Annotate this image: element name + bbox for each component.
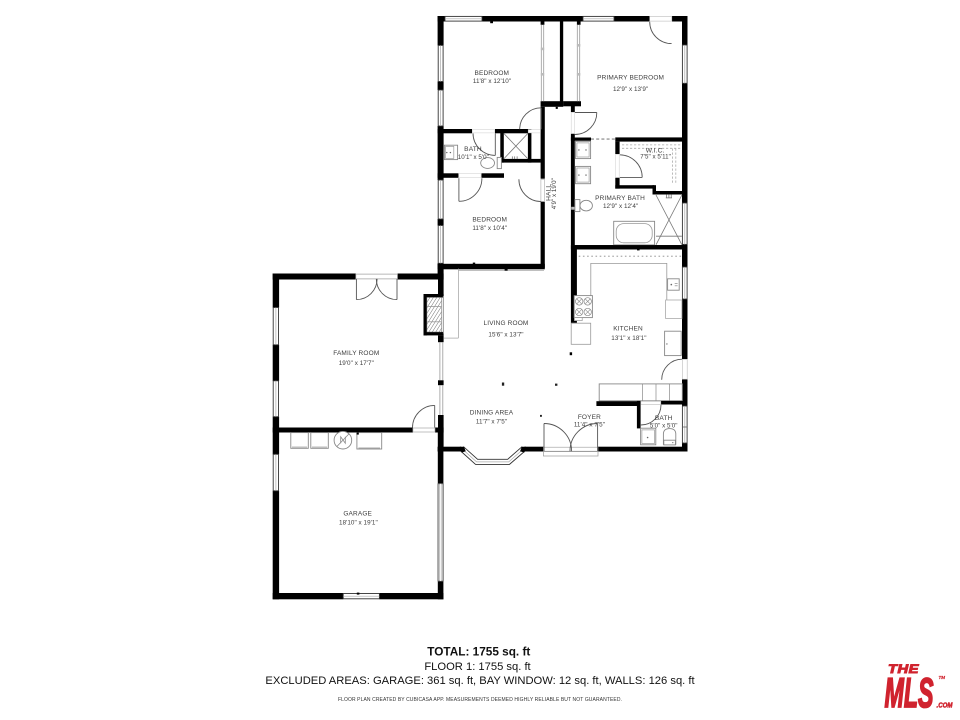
svg-text:5'0" x 5'0": 5'0" x 5'0" [650, 422, 678, 429]
svg-text:11'8" x 12'10": 11'8" x 12'10" [473, 78, 511, 85]
svg-text:10'1" x 5'0": 10'1" x 5'0" [458, 154, 489, 161]
svg-text:TOTAL: 1755 sq. ft: TOTAL: 1755 sq. ft [427, 645, 530, 659]
svg-text:GARAGE: GARAGE [343, 510, 372, 517]
svg-text:12'9" x 13'9": 12'9" x 13'9" [613, 86, 648, 93]
svg-text:11'8" x 10'4": 11'8" x 10'4" [472, 225, 507, 232]
svg-text:KITCHEN: KITCHEN [613, 325, 643, 332]
svg-text:FLOOR PLAN CREATED BY CUBICASA: FLOOR PLAN CREATED BY CUBICASA APP. MEAS… [338, 697, 622, 703]
svg-text:13'1" x 18'1": 13'1" x 18'1" [611, 335, 646, 342]
svg-text:PRIMARY BATH: PRIMARY BATH [595, 195, 645, 202]
svg-text:12'9" x 12'4": 12'9" x 12'4" [603, 203, 638, 210]
svg-text:PRIMARY BEDROOM: PRIMARY BEDROOM [597, 75, 664, 82]
svg-text:FOYER: FOYER [578, 414, 601, 421]
svg-text:7'5" x 5'11": 7'5" x 5'11" [640, 154, 671, 161]
svg-text:BATH: BATH [464, 146, 482, 153]
svg-text:11'4" x 7'5": 11'4" x 7'5" [574, 422, 605, 429]
svg-text:BATH: BATH [655, 415, 673, 422]
svg-text:BEDROOM: BEDROOM [474, 70, 509, 77]
svg-text:FAMILY ROOM: FAMILY ROOM [333, 350, 379, 357]
svg-text:TM: TM [939, 675, 946, 680]
svg-text:LIVING ROOM: LIVING ROOM [484, 320, 529, 327]
svg-text:18'10" x 19'1": 18'10" x 19'1" [339, 520, 378, 527]
svg-text:.COM: .COM [937, 703, 953, 710]
svg-text:15'6" x 13'7": 15'6" x 13'7" [488, 331, 523, 338]
svg-text:FLOOR 1: 1755 sq. ft: FLOOR 1: 1755 sq. ft [424, 661, 531, 673]
svg-text:BEDROOM: BEDROOM [472, 217, 507, 224]
svg-text:4'9" x 19'0": 4'9" x 19'0" [551, 178, 558, 209]
svg-text:EXCLUDED AREAS: GARAGE: 361 sq: EXCLUDED AREAS: GARAGE: 361 sq. ft, BAY … [265, 675, 695, 687]
svg-text:DINING AREA: DINING AREA [470, 409, 514, 416]
svg-text:MLS: MLS [885, 669, 934, 716]
svg-text:19'0" x 17'7": 19'0" x 17'7" [339, 360, 374, 367]
svg-text:11'7" x 7'5": 11'7" x 7'5" [476, 418, 507, 425]
